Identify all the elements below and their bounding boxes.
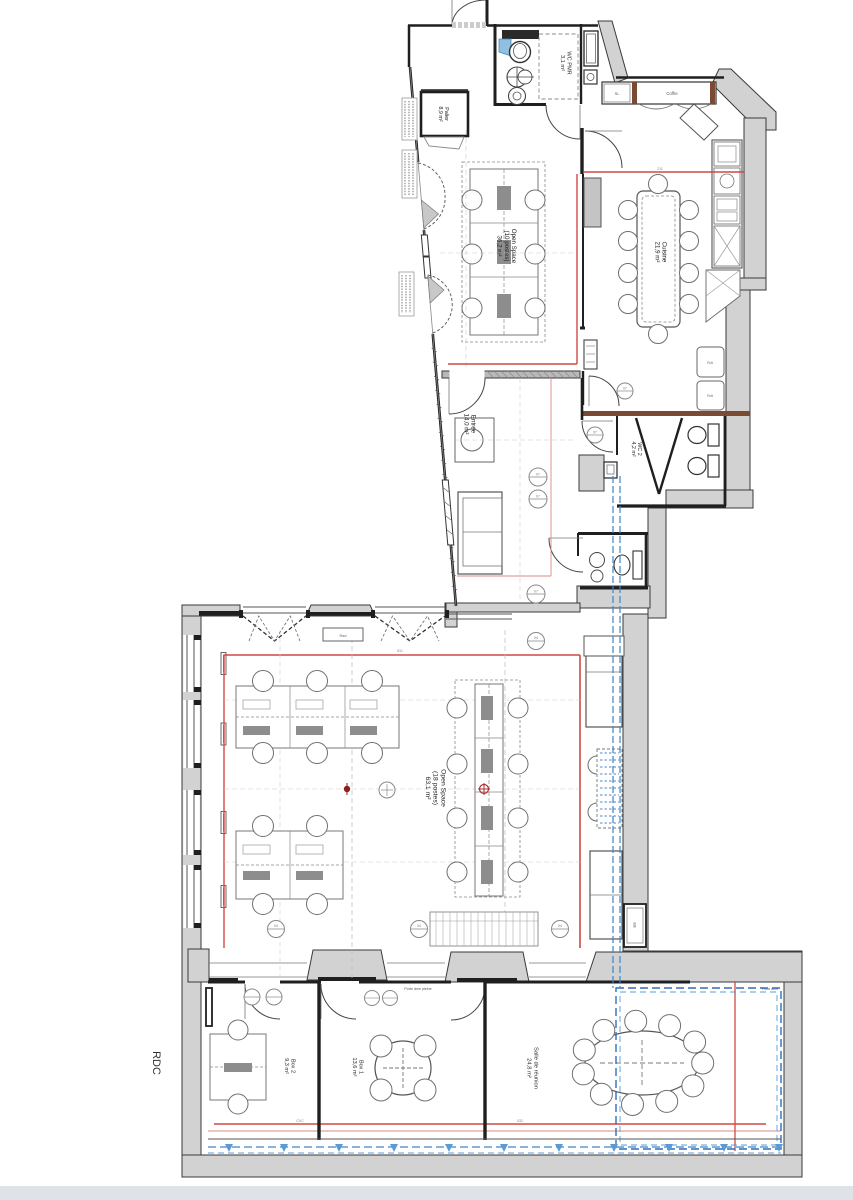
svg-text:07: 07 [536,473,540,477]
svg-text:SL: SL [615,92,620,96]
svg-text:(18 postes): (18 postes) [432,771,439,805]
svg-text:21,9 m²: 21,9 m² [653,242,660,263]
svg-text:EB: EB [633,922,638,928]
svg-text:07: 07 [623,387,627,391]
svg-text:8,9 m²: 8,9 m² [437,106,443,121]
svg-text:Palier: Palier [443,107,449,121]
svg-text:Porte âme pleine: Porte âme pleine [404,987,431,991]
svg-text:Box 1: Box 1 [357,1060,363,1074]
svg-text:Rad: Rad [340,634,347,638]
svg-text:Salle de réunion: Salle de réunion [532,1047,538,1089]
svg-text:07: 07 [536,495,540,499]
svg-text:04: 04 [534,636,538,640]
svg-text:211: 211 [657,167,663,171]
svg-text:13,6 m²: 13,6 m² [351,1058,357,1077]
svg-text:04: 04 [558,924,562,928]
svg-text:Rdt: Rdt [707,394,712,398]
svg-text:WC 2: WC 2 [636,442,642,455]
svg-text:Cuisine: Cuisine [660,242,667,263]
svg-text:CVC: CVC [296,1119,304,1123]
svg-text:532: 532 [517,1119,523,1123]
svg-text:3,1 m²: 3,1 m² [559,55,565,71]
svg-text:Open Space: Open Space [510,229,517,264]
svg-text:36,2 m²: 36,2 m² [496,236,503,257]
svg-text:07: 07 [534,590,538,594]
svg-text:531: 531 [397,649,403,653]
svg-text:Coffre: Coffre [666,91,678,96]
svg-text:04: 04 [274,924,278,928]
svg-text:63,1 m²: 63,1 m² [424,776,431,800]
svg-text:9,3 m²: 9,3 m² [283,1058,289,1074]
svg-text:14,0 m²: 14,0 m² [462,414,469,435]
svg-text:RDC: RDC [150,1051,162,1075]
svg-text:4,2 m²: 4,2 m² [630,441,636,456]
svg-text:Open Space: Open Space [439,769,446,807]
svg-text:07: 07 [593,431,597,435]
svg-text:WC PMR: WC PMR [565,51,571,74]
svg-text:Box 2: Box 2 [289,1059,295,1073]
svg-text:Rdt: Rdt [707,361,712,365]
svg-text:Entrée: Entrée [469,415,476,434]
svg-text:24,8 m²: 24,8 m² [526,1058,532,1078]
svg-text:04: 04 [417,924,421,928]
svg-text:(10 postes): (10 postes) [503,231,510,262]
